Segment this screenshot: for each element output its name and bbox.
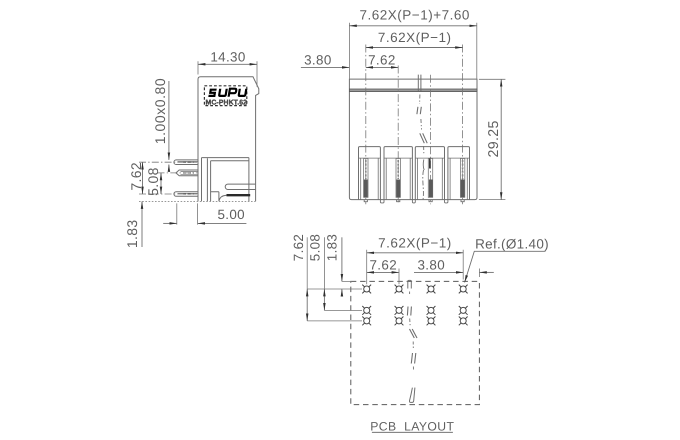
svg-text:5.08: 5.08 <box>308 234 323 261</box>
svg-text:PCB LAYOUT: PCB LAYOUT <box>370 419 454 433</box>
svg-text:7.62X(P−1): 7.62X(P−1) <box>378 236 452 251</box>
svg-text:7.62X(P−1)+7.60: 7.62X(P−1)+7.60 <box>360 7 470 22</box>
svg-text:1.00x0.80: 1.00x0.80 <box>152 78 168 144</box>
svg-text:7.62: 7.62 <box>369 257 397 272</box>
svg-text:3.80: 3.80 <box>417 257 445 272</box>
svg-text:29.25: 29.25 <box>486 120 502 157</box>
svg-text:5.08: 5.08 <box>145 167 161 196</box>
svg-text:Ref.(Ø1.40): Ref.(Ø1.40) <box>475 236 549 251</box>
svg-text:14.30: 14.30 <box>210 49 245 64</box>
svg-text:1.83: 1.83 <box>124 219 140 248</box>
svg-text:7.62: 7.62 <box>291 234 306 261</box>
svg-text:MC-PHKT.62: MC-PHKT.62 <box>206 100 248 107</box>
svg-text:3.80: 3.80 <box>304 53 332 68</box>
svg-text:1.83: 1.83 <box>324 234 339 261</box>
svg-text:5.00: 5.00 <box>217 207 244 222</box>
svg-text:7.62X(P−1): 7.62X(P−1) <box>378 30 452 45</box>
svg-text:7.62: 7.62 <box>368 53 396 68</box>
svg-text:7.62: 7.62 <box>128 162 144 191</box>
